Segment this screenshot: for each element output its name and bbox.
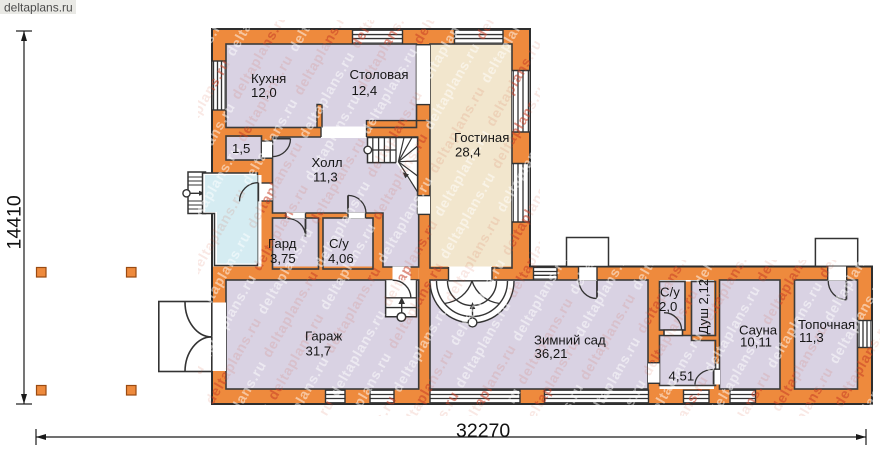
svg-text:11,3: 11,3 [799,330,824,345]
svg-text:31,7: 31,7 [306,344,332,359]
svg-text:Гард: Гард [268,236,297,251]
svg-text:11,3: 11,3 [313,170,338,185]
svg-text:32270: 32270 [456,420,510,442]
svg-text:Гостиная: Гостиная [454,130,509,145]
svg-text:10,11: 10,11 [740,335,772,350]
svg-text:deltaplans.ru: deltaplans.ru [4,1,73,15]
svg-text:36,21: 36,21 [535,346,568,361]
svg-text:12,4: 12,4 [352,83,378,98]
svg-text:4,51: 4,51 [669,369,695,384]
svg-text:Столовая: Столовая [350,67,409,82]
svg-text:Холл: Холл [312,155,343,170]
svg-text:С/у: С/у [660,285,680,300]
svg-text:14410: 14410 [4,195,26,249]
svg-text:3,75: 3,75 [270,251,296,266]
svg-text:Душ 2,12: Душ 2,12 [696,279,711,335]
svg-text:12,0: 12,0 [251,85,277,100]
svg-text:Гараж: Гараж [305,329,342,344]
svg-text:С/у: С/у [329,236,349,251]
svg-text:2,0: 2,0 [659,299,677,314]
svg-text:4,06: 4,06 [328,251,354,266]
svg-text:Кухня: Кухня [251,71,286,86]
svg-text:28,4: 28,4 [455,145,481,160]
svg-text:1,5: 1,5 [232,141,250,156]
